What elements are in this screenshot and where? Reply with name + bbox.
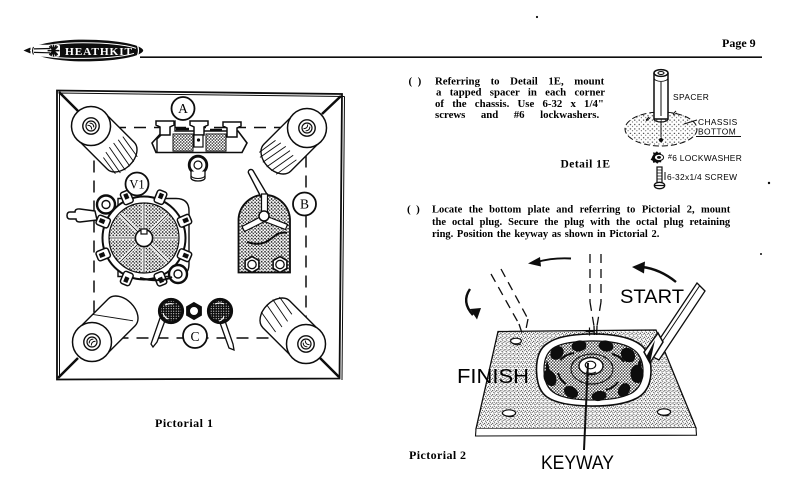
svg-text:Pictorial 1: Pictorial 1 bbox=[155, 416, 213, 430]
svg-text:Referring to Detail 1E, mount: Referring to Detail 1E, mount bbox=[435, 76, 605, 88]
svg-text:screws and #6 lockwashers.: screws and #6 lockwashers. bbox=[435, 109, 599, 121]
svg-text:Page 9: Page 9 bbox=[722, 36, 756, 50]
svg-text:of the chassis. Use 6-32 x 1/4: of the chassis. Use 6-32 x 1/4" bbox=[435, 98, 604, 110]
svg-text:( ): ( ) bbox=[409, 76, 422, 88]
svg-text:#6 LOCKWASHER: #6 LOCKWASHER bbox=[668, 153, 742, 163]
svg-text:KEYWAY: KEYWAY bbox=[541, 453, 614, 474]
svg-text:ring. Position the keyway as s: ring. Position the keyway as shown in Pi… bbox=[432, 229, 660, 240]
svg-text:Pictorial 2: Pictorial 2 bbox=[409, 448, 466, 462]
svg-text:CHASSIS: CHASSIS bbox=[698, 117, 738, 127]
svg-text:6-32x1/4 SCREW: 6-32x1/4 SCREW bbox=[667, 172, 737, 182]
svg-text:START: START bbox=[620, 287, 684, 308]
svg-text:C: C bbox=[190, 329, 199, 344]
svg-text:Locate the bottom plate and re: Locate the bottom plate and referring to… bbox=[432, 205, 731, 216]
svg-text:SPACER: SPACER bbox=[673, 92, 709, 102]
svg-text:the octal plug. Secure the plu: the octal plug. Secure the plug with the… bbox=[432, 217, 731, 228]
svg-text:V1: V1 bbox=[129, 178, 144, 192]
svg-text:( ): ( ) bbox=[407, 204, 420, 216]
svg-text:HEATHKIT: HEATHKIT bbox=[65, 47, 133, 58]
svg-text:FINISH: FINISH bbox=[457, 366, 529, 388]
svg-text:BOTTOM: BOTTOM bbox=[698, 127, 736, 137]
svg-text:Detail 1E: Detail 1E bbox=[561, 159, 611, 171]
svg-text:B: B bbox=[300, 197, 309, 212]
svg-text:A: A bbox=[178, 101, 188, 116]
